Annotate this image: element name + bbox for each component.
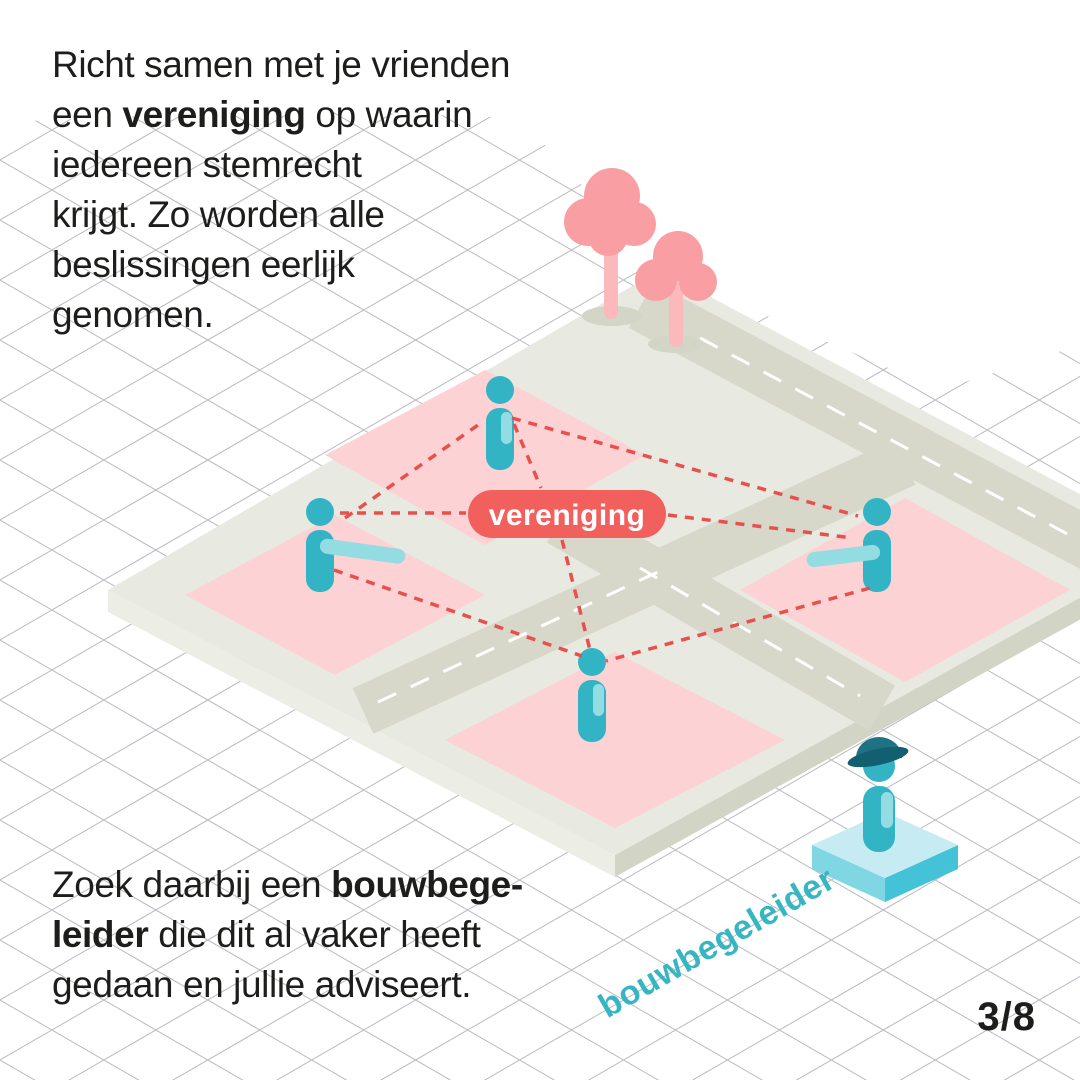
association-label: vereniging [489, 499, 646, 532]
grid-line [0, 1062, 1080, 1080]
intro-paragraph: Richt samen met je vriendeneen verenigin… [52, 40, 612, 340]
association-pill: vereniging [468, 490, 666, 538]
infographic-slide: vereniging Richt samen met je vriendenee… [0, 0, 1080, 1080]
person-icon [486, 376, 514, 470]
page-indicator: 3/8 [977, 995, 1036, 1040]
outro-paragraph: Zoek daarbij een bouwbege-leider die dit… [52, 860, 652, 1010]
person-icon [578, 648, 606, 742]
grid-line [0, 1002, 1080, 1080]
